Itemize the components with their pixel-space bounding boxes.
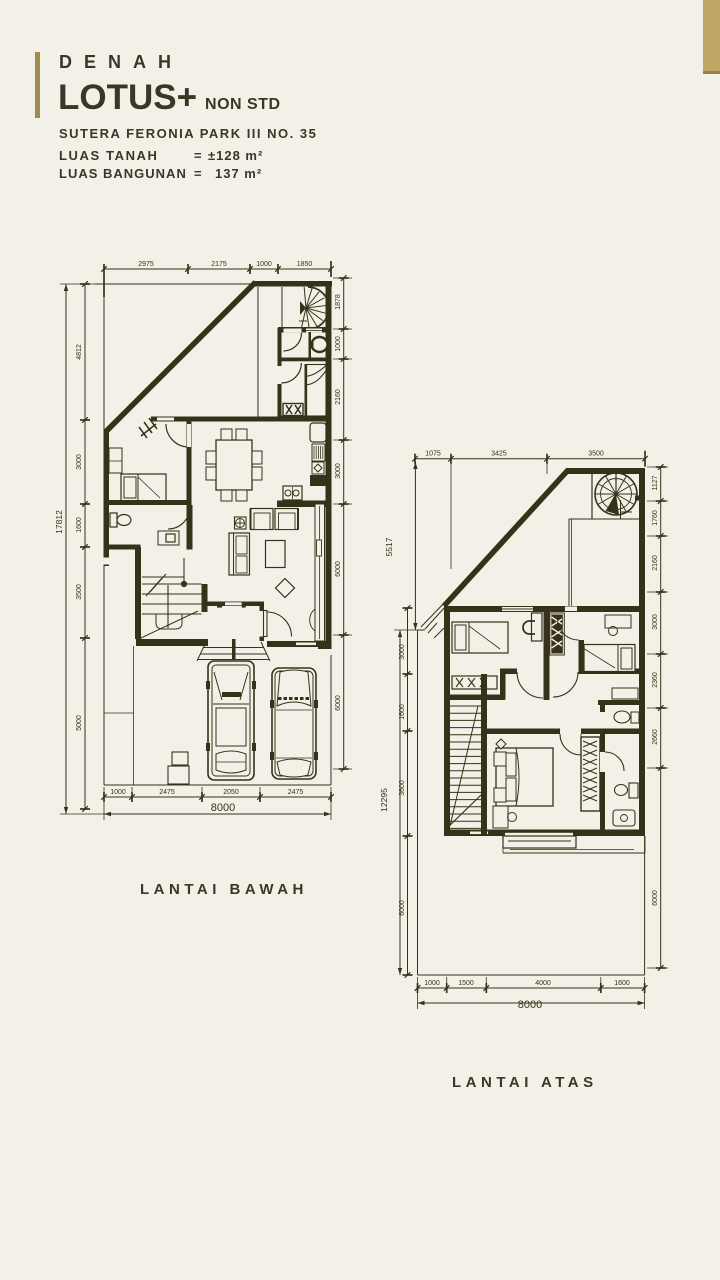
svg-text:3000: 3000 [652,614,659,630]
svg-text:1000: 1000 [335,336,342,352]
svg-text:1600: 1600 [399,704,406,720]
svg-text:8000: 8000 [518,999,542,1011]
svg-text:3500: 3500 [588,451,604,458]
svg-text:8000: 8000 [211,802,235,814]
svg-text:1878: 1878 [335,294,342,310]
svg-text:3000: 3000 [76,454,83,470]
svg-text:2050: 2050 [223,789,239,796]
svg-text:1500: 1500 [458,980,474,987]
svg-text:2360: 2360 [652,672,659,688]
svg-text:5000: 5000 [76,715,83,731]
svg-text:2475: 2475 [288,789,304,796]
svg-text:4812: 4812 [76,344,83,360]
svg-text:1000: 1000 [110,789,126,796]
svg-text:3000: 3000 [399,644,406,660]
svg-text:1600: 1600 [614,980,630,987]
svg-text:3000: 3000 [335,463,342,479]
svg-text:1000: 1000 [424,980,440,987]
svg-text:6000: 6000 [335,561,342,577]
svg-text:1760: 1760 [652,510,659,526]
svg-text:4000: 4000 [535,980,551,987]
svg-text:5517: 5517 [384,537,394,556]
svg-text:3425: 3425 [491,451,507,458]
svg-text:1850: 1850 [297,261,313,268]
svg-text:1075: 1075 [425,451,441,458]
svg-text:1000: 1000 [256,261,272,268]
svg-text:6000: 6000 [652,890,659,906]
svg-text:3600: 3600 [399,780,406,796]
svg-text:6000: 6000 [335,695,342,711]
svg-text:2160: 2160 [652,555,659,571]
svg-text:12295: 12295 [379,788,389,812]
svg-text:1600: 1600 [76,517,83,533]
svg-text:17812: 17812 [54,510,64,534]
svg-text:6000: 6000 [399,900,406,916]
svg-text:3500: 3500 [76,584,83,600]
svg-text:2475: 2475 [159,789,175,796]
svg-text:2175: 2175 [211,261,227,268]
svg-text:2660: 2660 [652,729,659,745]
svg-text:2160: 2160 [335,389,342,405]
svg-text:2975: 2975 [138,261,154,268]
svg-text:1127: 1127 [652,475,659,490]
